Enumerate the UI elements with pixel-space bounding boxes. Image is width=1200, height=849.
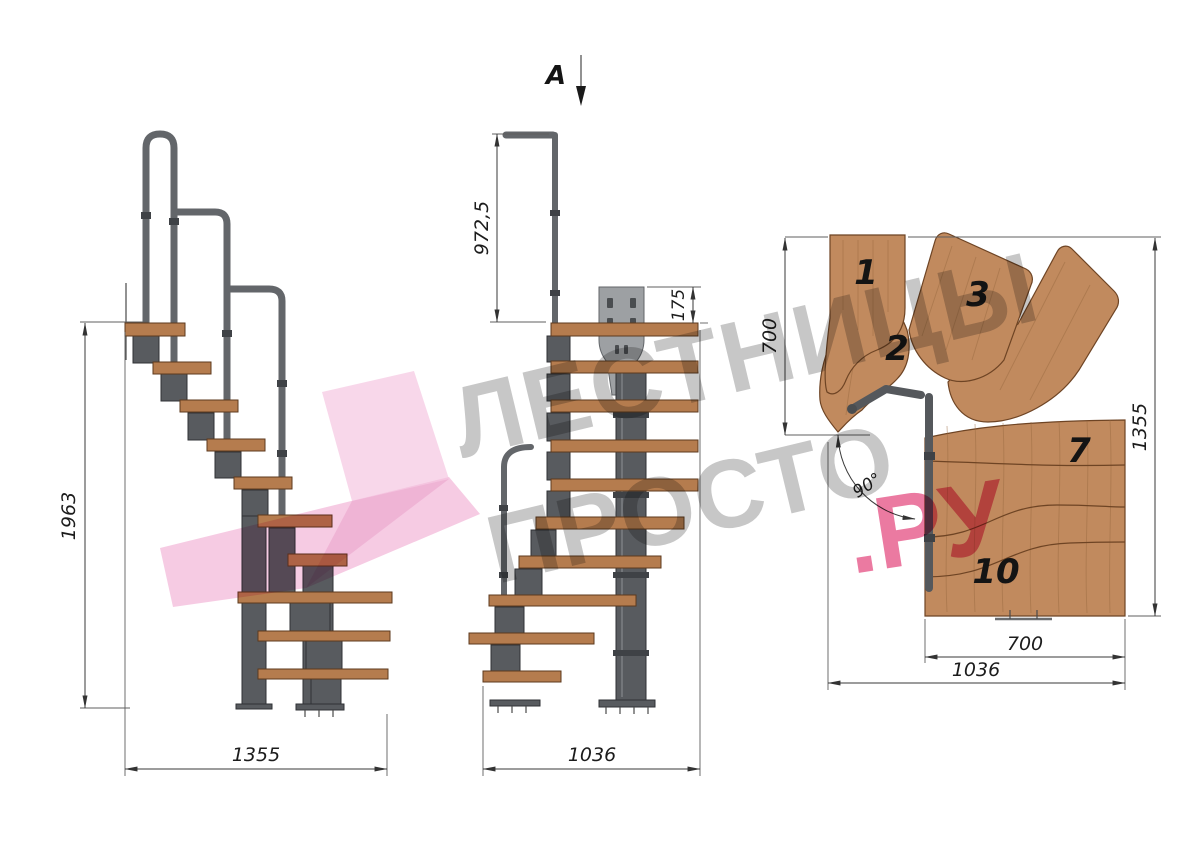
module bbox=[188, 413, 214, 440]
base-plate bbox=[490, 700, 540, 706]
arrow-facet bbox=[322, 371, 449, 501]
rail-joint bbox=[277, 450, 287, 457]
dim-label-length: 1355 bbox=[232, 744, 280, 766]
column-joint bbox=[613, 650, 649, 656]
module bbox=[290, 603, 330, 634]
rail-joint bbox=[141, 212, 151, 219]
base-plate bbox=[599, 700, 655, 707]
base-plate bbox=[296, 704, 344, 710]
rail-joint bbox=[277, 380, 287, 387]
rail-joint bbox=[169, 218, 179, 225]
anchor-bolts bbox=[606, 707, 648, 714]
dim-label-flight-width: 700 bbox=[1007, 633, 1043, 655]
module bbox=[311, 679, 341, 705]
dim-label-height: 1963 bbox=[58, 492, 80, 540]
module bbox=[133, 336, 159, 363]
tread bbox=[258, 631, 390, 641]
bolt-slot bbox=[630, 298, 636, 308]
dim-label-width: 1036 bbox=[568, 744, 616, 766]
section-marker: A bbox=[544, 55, 586, 106]
rail-joint bbox=[924, 452, 935, 460]
rail-joint bbox=[550, 210, 560, 216]
module bbox=[491, 645, 520, 672]
module bbox=[215, 452, 241, 478]
rail-joint bbox=[222, 330, 232, 337]
module bbox=[242, 490, 268, 516]
tread bbox=[469, 633, 594, 644]
tread bbox=[125, 323, 185, 336]
tread bbox=[234, 477, 292, 489]
tread bbox=[258, 669, 388, 679]
tread bbox=[207, 439, 265, 451]
bolt-slot bbox=[607, 298, 613, 308]
dim-label-total-width: 1036 bbox=[952, 659, 1000, 681]
section-label: A bbox=[544, 61, 566, 91]
module bbox=[161, 374, 187, 401]
tread-number-7: 7 bbox=[1067, 431, 1091, 471]
rail-joint bbox=[550, 290, 560, 296]
dim-label-depth: 1355 bbox=[1129, 403, 1151, 451]
anchor-bolts bbox=[498, 706, 526, 713]
module bbox=[495, 607, 524, 634]
tread bbox=[180, 400, 238, 412]
tread bbox=[153, 362, 211, 374]
dim-label-rail-height: 972,5 bbox=[471, 201, 493, 255]
tread bbox=[483, 671, 561, 682]
staircase-technical-drawing: 1963 1355 A bbox=[0, 0, 1200, 849]
module bbox=[306, 641, 342, 672]
section-arrowhead-icon bbox=[576, 86, 586, 106]
drawing-canvas: 1963 1355 A bbox=[0, 0, 1200, 849]
base-plate bbox=[236, 704, 272, 709]
anchor-bolts bbox=[305, 710, 333, 717]
